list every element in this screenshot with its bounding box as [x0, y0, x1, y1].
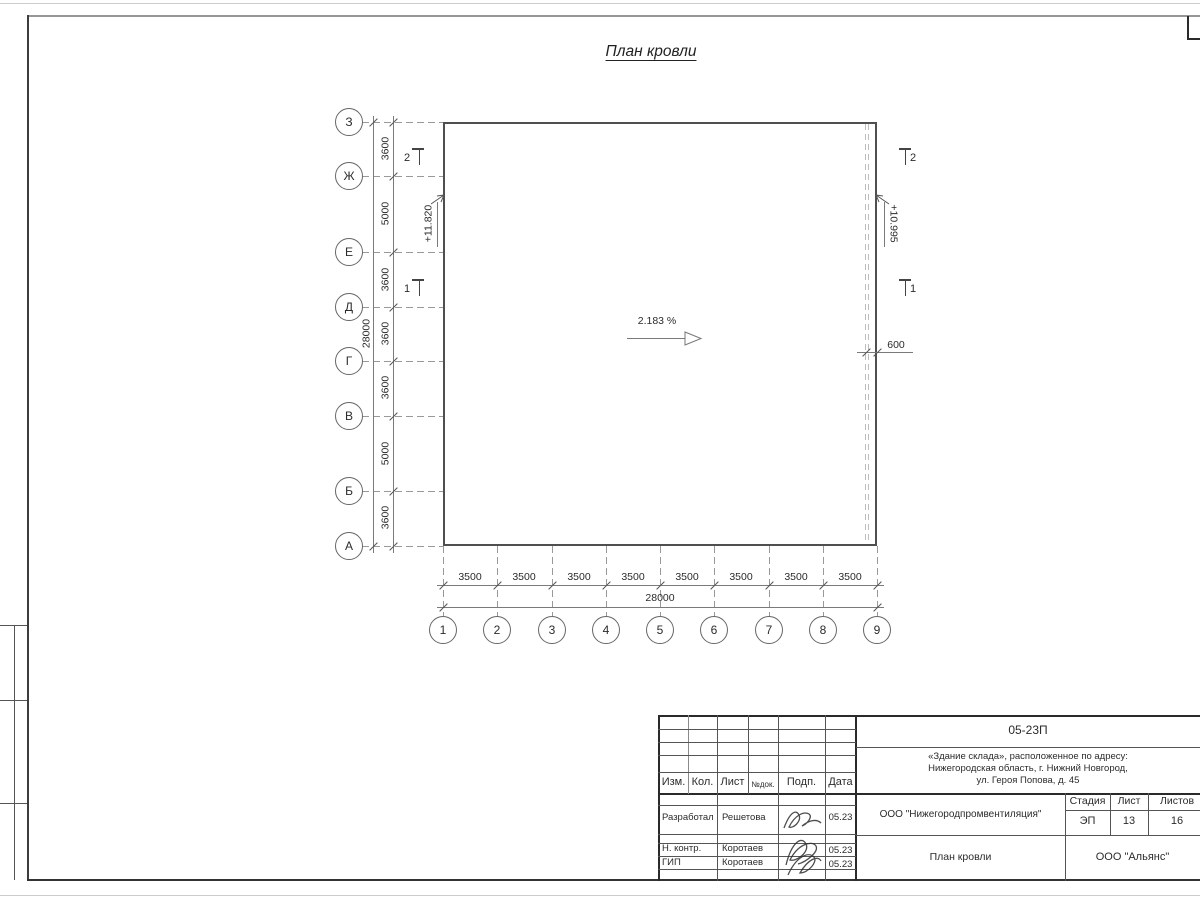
sheet-bottom-edge — [0, 895, 1200, 896]
tb-doc-number: 05-23П — [856, 724, 1200, 737]
section-mark — [905, 279, 906, 296]
axis-bubble: Б — [335, 477, 363, 505]
dim-label: 3500 — [554, 571, 604, 584]
section-mark — [905, 148, 906, 165]
signature-scribble — [780, 806, 824, 834]
axis-bubble: 4 — [592, 616, 620, 644]
axis-bubble: 7 — [755, 616, 783, 644]
axis-bubble: Е — [335, 238, 363, 266]
tb-col-data: Дата — [825, 776, 856, 789]
tb-address-line: Нижегородская область, г. Нижний Новгоро… — [856, 763, 1200, 775]
tb-role: ГИП — [662, 856, 717, 869]
tb-date: 05.23 — [825, 858, 856, 871]
corner-box-bottom — [1187, 38, 1200, 40]
dim-label: 3600 — [380, 309, 393, 359]
tb-line — [658, 772, 856, 773]
section-mark — [419, 148, 420, 165]
dim-total-label: 28000 — [361, 304, 374, 364]
tb-col-izm: Изм. — [658, 776, 689, 789]
axis-line — [362, 176, 443, 177]
dim-label: 3500 — [825, 571, 875, 584]
dim-label: 3600 — [380, 493, 393, 543]
corner-box-left — [1187, 16, 1189, 38]
axis-bubble: 3 — [538, 616, 566, 644]
tb-role: Н. контр. — [662, 842, 717, 855]
axis-bubble: А — [335, 532, 363, 560]
tb-drawing-name: План кровли — [856, 851, 1065, 864]
axis-bubble: 1 — [429, 616, 457, 644]
signature-scribble — [778, 833, 824, 883]
tb-line — [658, 742, 856, 743]
tb-client-company: ООО "Альянс" — [1065, 851, 1200, 864]
tb-col-list: Лист — [717, 776, 748, 789]
axis-bubble: 2 — [483, 616, 511, 644]
tb-line — [658, 729, 856, 730]
tb-name: Решетова — [722, 811, 778, 824]
dim-label: 600 — [876, 339, 916, 352]
dim-label: 3500 — [662, 571, 712, 584]
drawing-heading: План кровли — [551, 43, 751, 61]
slope-label: 2.183 % — [622, 315, 692, 328]
roof-outline — [443, 122, 877, 546]
section-number: 2 — [907, 152, 919, 165]
tb-line — [658, 755, 856, 756]
axis-bubble: 9 — [863, 616, 891, 644]
section-number: 2 — [401, 152, 413, 165]
tb-col-kol: Кол. — [688, 776, 717, 789]
dim-label: 3500 — [445, 571, 495, 584]
drawing-canvas: { "heading": "План кровли", "colors": {"… — [0, 0, 1200, 900]
side-table-line — [0, 625, 27, 626]
tb-sheets-value: 16 — [1148, 815, 1200, 828]
dim-label: 3500 — [499, 571, 549, 584]
tb-role: Разработал — [662, 811, 717, 824]
axis-bubble: 8 — [809, 616, 837, 644]
elevation-label: +11.820 — [423, 194, 436, 254]
tb-line — [658, 715, 1200, 717]
tb-sheet-value: 13 — [1110, 815, 1148, 828]
dim-label: 5000 — [380, 189, 393, 239]
tb-name: Коротаев — [722, 856, 778, 869]
section-mark — [419, 279, 420, 296]
axis-bubble: 6 — [700, 616, 728, 644]
tb-line — [658, 805, 856, 806]
axis-bubble: Д — [335, 293, 363, 321]
tb-stage-label: Стадия — [1065, 795, 1110, 808]
axis-bubble: З — [335, 108, 363, 136]
tb-designer-company: ООО "Нижегородпромвентиляция" — [856, 808, 1065, 821]
elevation-leader — [437, 202, 438, 247]
axis-bubble: 5 — [646, 616, 674, 644]
axis-line — [362, 307, 443, 308]
axis-line — [362, 416, 443, 417]
tb-line — [856, 835, 1200, 836]
dim-label: 3600 — [380, 255, 393, 305]
dim-label: 3500 — [608, 571, 658, 584]
slope-arrow-icon — [684, 331, 703, 346]
tb-sheets-label: Листов — [1148, 795, 1200, 808]
axis-line — [362, 491, 443, 492]
tb-col-ndok: №док. — [748, 778, 778, 791]
dim-total-label: 28000 — [630, 592, 690, 605]
dimension-line — [393, 116, 394, 553]
tb-line — [658, 834, 856, 835]
wall-hidden-line — [865, 124, 866, 544]
dim-label: 3600 — [380, 363, 393, 413]
title-block: Изм. Кол. Лист №док. Подп. Дата Разработ… — [658, 715, 1200, 881]
wall-hidden-line — [868, 124, 869, 544]
tb-stage-value: ЭП — [1065, 815, 1110, 828]
section-number: 1 — [401, 283, 413, 296]
tb-line — [1065, 810, 1200, 811]
axis-bubble: Ж — [335, 162, 363, 190]
section-mark — [412, 148, 424, 150]
tb-sheet-label: Лист — [1110, 795, 1148, 808]
axis-line — [362, 361, 443, 362]
elevation-leader — [884, 202, 885, 247]
tb-date: 05.23 — [825, 844, 856, 857]
tb-address-line: «Здание склада», расположенное по адресу… — [856, 751, 1200, 763]
tb-col-podp: Подп. — [778, 776, 825, 789]
side-table-divider — [14, 625, 15, 880]
elevation-label: +10.995 — [887, 194, 900, 254]
axis-bubble: Г — [335, 347, 363, 375]
section-mark — [412, 279, 424, 281]
dim-label: 3500 — [716, 571, 766, 584]
tb-line — [856, 747, 1200, 748]
frame-left — [27, 15, 29, 881]
dim-label: 5000 — [380, 429, 393, 479]
tb-name: Коротаев — [722, 842, 778, 855]
dimension-line — [437, 607, 884, 608]
side-table-line — [0, 700, 27, 701]
tb-address-line: ул. Героя Попова, д. 45 — [856, 775, 1200, 787]
section-number: 1 — [907, 283, 919, 296]
dim-label: 3600 — [380, 124, 393, 174]
frame-top — [27, 15, 1200, 17]
sheet-top-edge — [0, 3, 1200, 4]
tb-date: 05.23 — [825, 811, 856, 824]
axis-bubble: В — [335, 402, 363, 430]
side-table-line — [0, 803, 27, 804]
slope-line — [627, 338, 685, 339]
dim-label: 3500 — [771, 571, 821, 584]
